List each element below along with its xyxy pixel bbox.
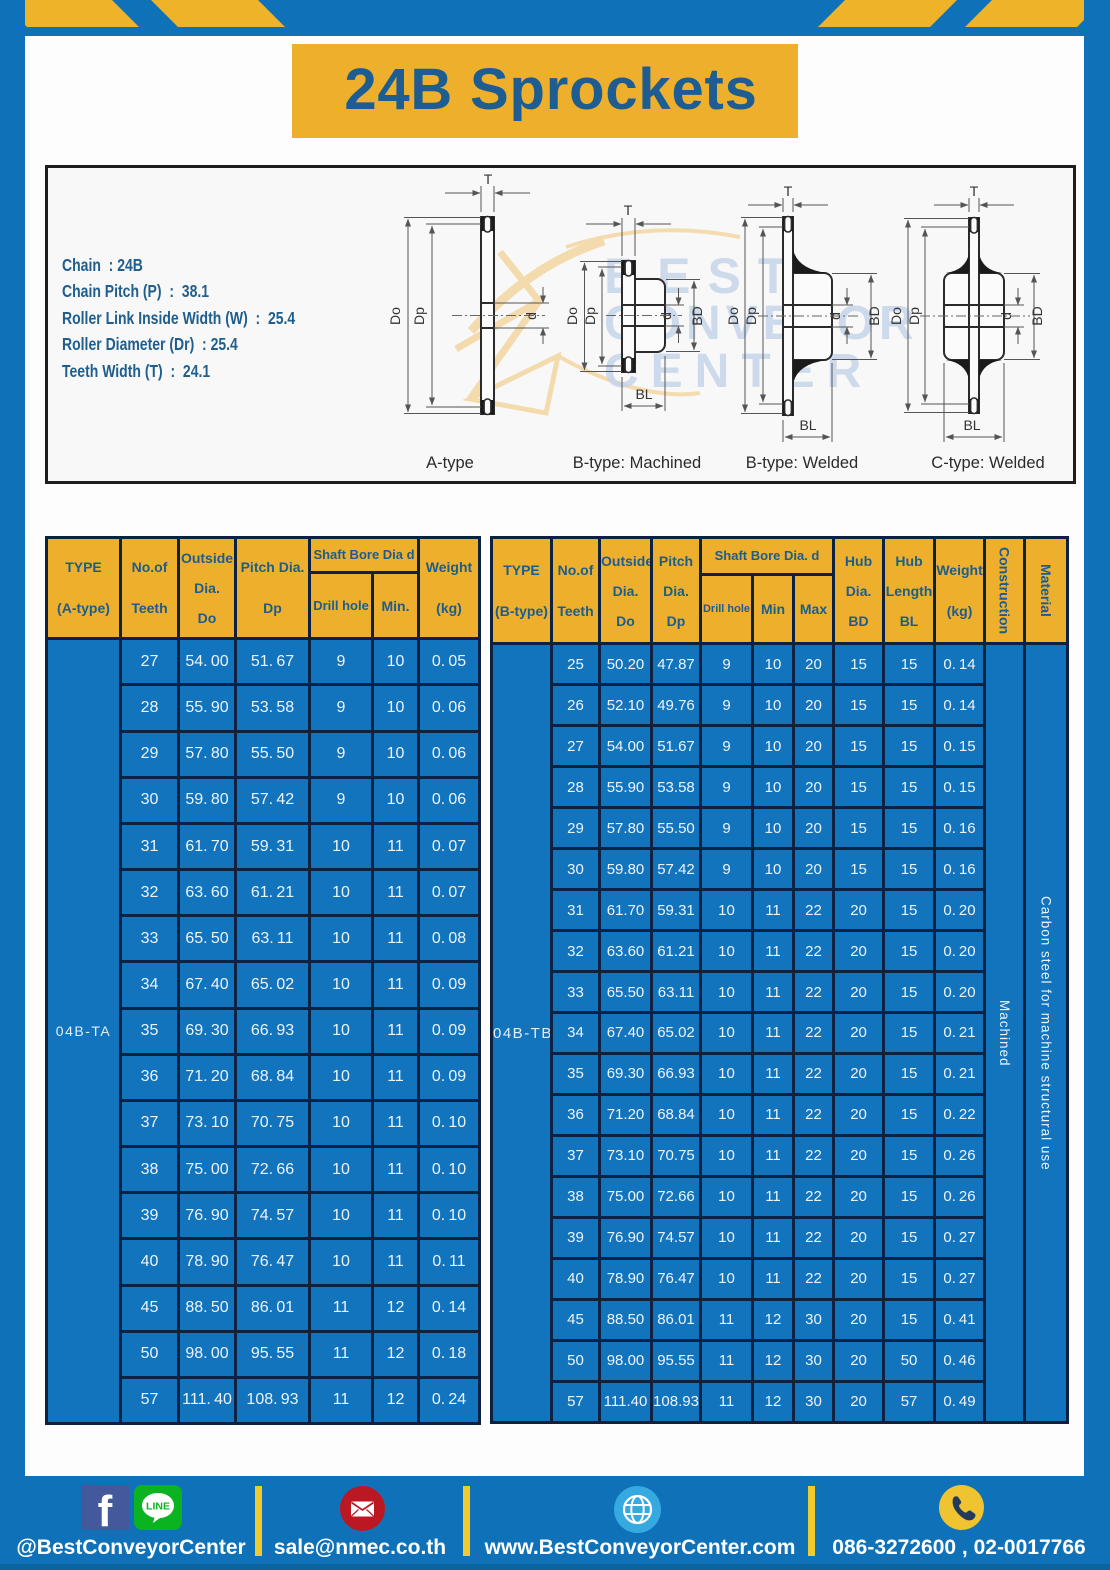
svg-text:BL: BL bbox=[799, 417, 816, 433]
svg-text:Do: Do bbox=[725, 307, 741, 325]
svg-text:LINE: LINE bbox=[146, 1501, 170, 1513]
svg-text:C-type: Welded: C-type: Welded bbox=[931, 454, 1044, 472]
svg-text:Do: Do bbox=[888, 307, 904, 325]
svg-text:d: d bbox=[658, 312, 674, 320]
svg-text:T: T bbox=[970, 183, 979, 199]
svg-text:d: d bbox=[998, 312, 1014, 320]
svg-text:BD: BD bbox=[689, 306, 705, 325]
svg-text:BL: BL bbox=[635, 386, 652, 402]
svg-text:Do: Do bbox=[387, 307, 403, 325]
svg-text:T: T bbox=[484, 171, 493, 187]
svg-text:BD: BD bbox=[1029, 306, 1045, 325]
svg-text:A-type: A-type bbox=[426, 454, 474, 472]
svg-text:T: T bbox=[784, 183, 793, 199]
svg-text:BD: BD bbox=[866, 306, 882, 325]
svg-text:T: T bbox=[624, 202, 633, 218]
svg-text:Do: Do bbox=[564, 307, 580, 325]
svg-text:Dp: Dp bbox=[411, 307, 427, 325]
svg-text:B-type: Machined: B-type: Machined bbox=[573, 454, 701, 472]
svg-text:Dp: Dp bbox=[582, 307, 598, 325]
svg-text:B-type: Welded: B-type: Welded bbox=[746, 454, 859, 472]
svg-text:Dp: Dp bbox=[906, 307, 922, 325]
svg-text:BL: BL bbox=[963, 417, 980, 433]
svg-text:d: d bbox=[523, 312, 539, 320]
svg-text:d: d bbox=[827, 312, 843, 320]
svg-text:Dp: Dp bbox=[743, 307, 759, 325]
